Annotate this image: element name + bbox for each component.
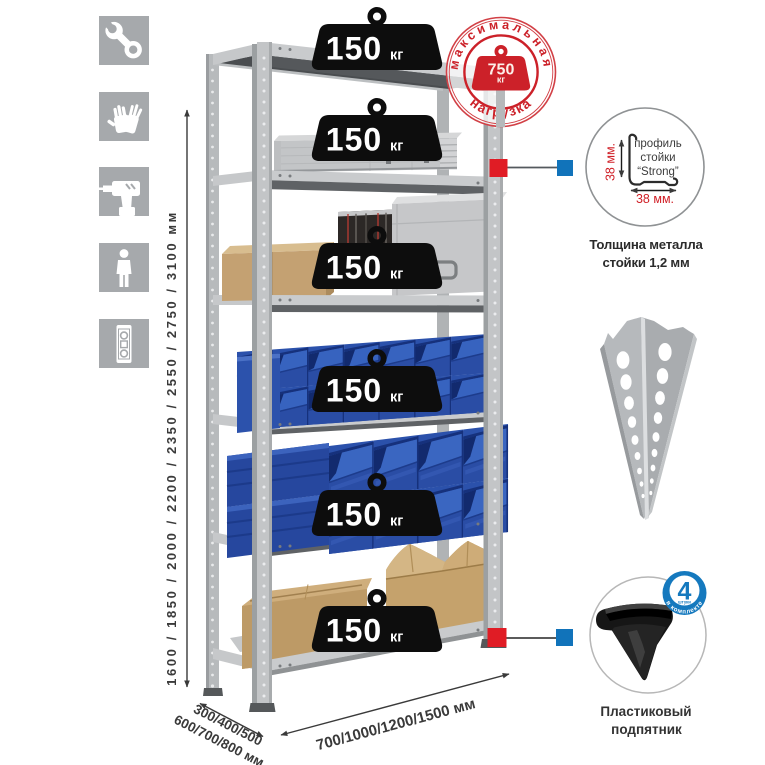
svg-text:стойки: стойки [640,152,675,164]
svg-text:38 мм.: 38 мм. [604,143,618,181]
svg-text:штуки: штуки [678,600,691,605]
svg-text:кг: кг [497,75,506,85]
svg-text:“Strong”: “Strong” [637,166,679,178]
svg-text:Толщина металла: Толщина металла [589,237,703,252]
svg-text:подпятник: подпятник [611,722,682,737]
svg-text:стойки 1,2 мм: стойки 1,2 мм [602,255,689,270]
svg-text:38 мм.: 38 мм. [636,192,674,206]
svg-text:1600 / 1850 / 2000 / 2200 / 23: 1600 / 1850 / 2000 / 2200 / 2350 / 2550 … [164,210,179,686]
svg-text:Пластиковый: Пластиковый [600,704,691,719]
svg-text:профиль: профиль [634,138,682,150]
